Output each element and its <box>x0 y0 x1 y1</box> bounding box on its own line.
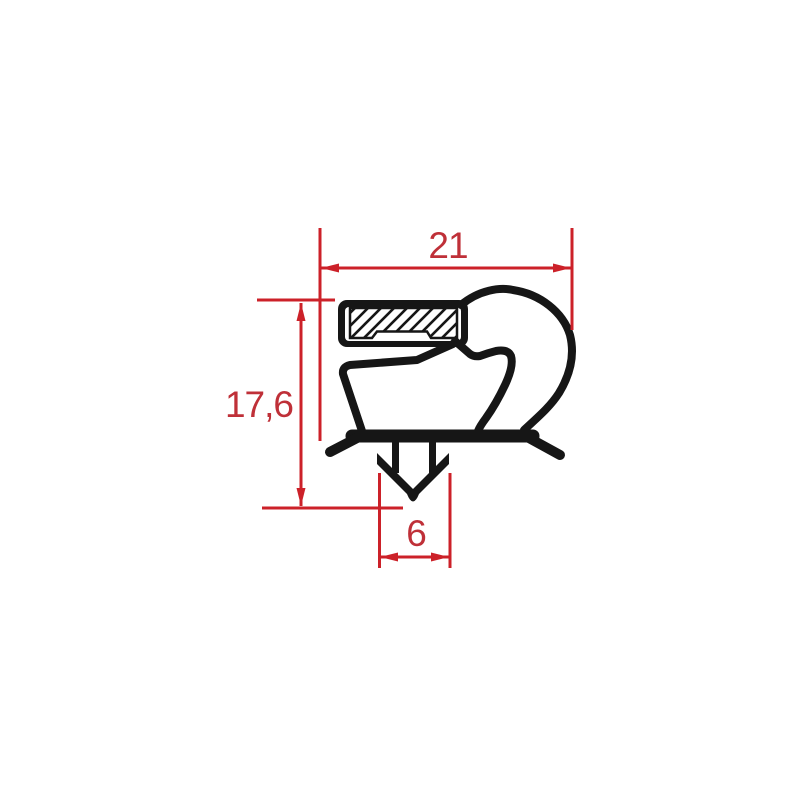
gasket-profile <box>330 289 572 502</box>
anchor-dart-chevron <box>377 453 449 502</box>
dimension-label-anchor-width: 6 <box>406 513 426 554</box>
arrow-left-icon <box>321 264 339 273</box>
lip-fold-line <box>343 344 453 431</box>
arrow-right-icon <box>431 553 449 562</box>
arrow-left-icon <box>380 553 398 562</box>
dimension-label-total-height: 17,6 <box>225 384 293 425</box>
inner-fold-line <box>455 341 512 431</box>
diagram-canvas: 21 17,6 6 <box>0 0 800 800</box>
arrow-up-icon <box>297 303 306 321</box>
arrow-down-icon <box>297 488 306 506</box>
base-right-flange <box>529 438 560 455</box>
gasket-profile-diagram: 21 17,6 6 <box>0 0 800 800</box>
dimension-label-total-width: 21 <box>428 225 467 266</box>
anchor-dart-stem-left <box>392 441 399 473</box>
base-left-flange <box>330 438 357 452</box>
arrow-right-icon <box>553 264 571 273</box>
